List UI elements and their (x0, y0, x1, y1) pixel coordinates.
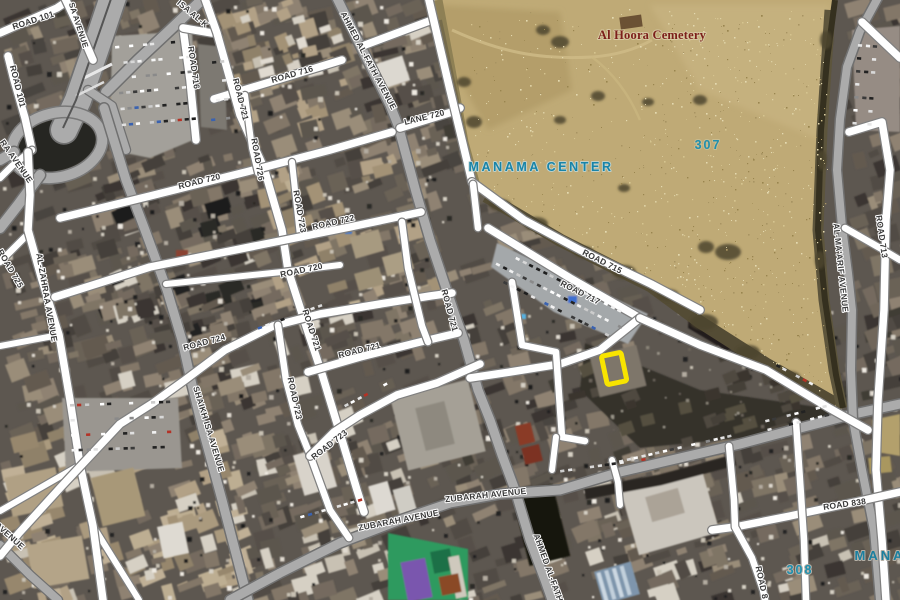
svg-text:MANA: MANA (855, 548, 900, 563)
svg-text:Al Hoora Cemetery: Al Hoora Cemetery (598, 28, 707, 42)
svg-text:308: 308 (787, 563, 814, 577)
svg-text:MANAMA CENTER: MANAMA CENTER (468, 160, 613, 174)
svg-text:307: 307 (695, 138, 722, 152)
